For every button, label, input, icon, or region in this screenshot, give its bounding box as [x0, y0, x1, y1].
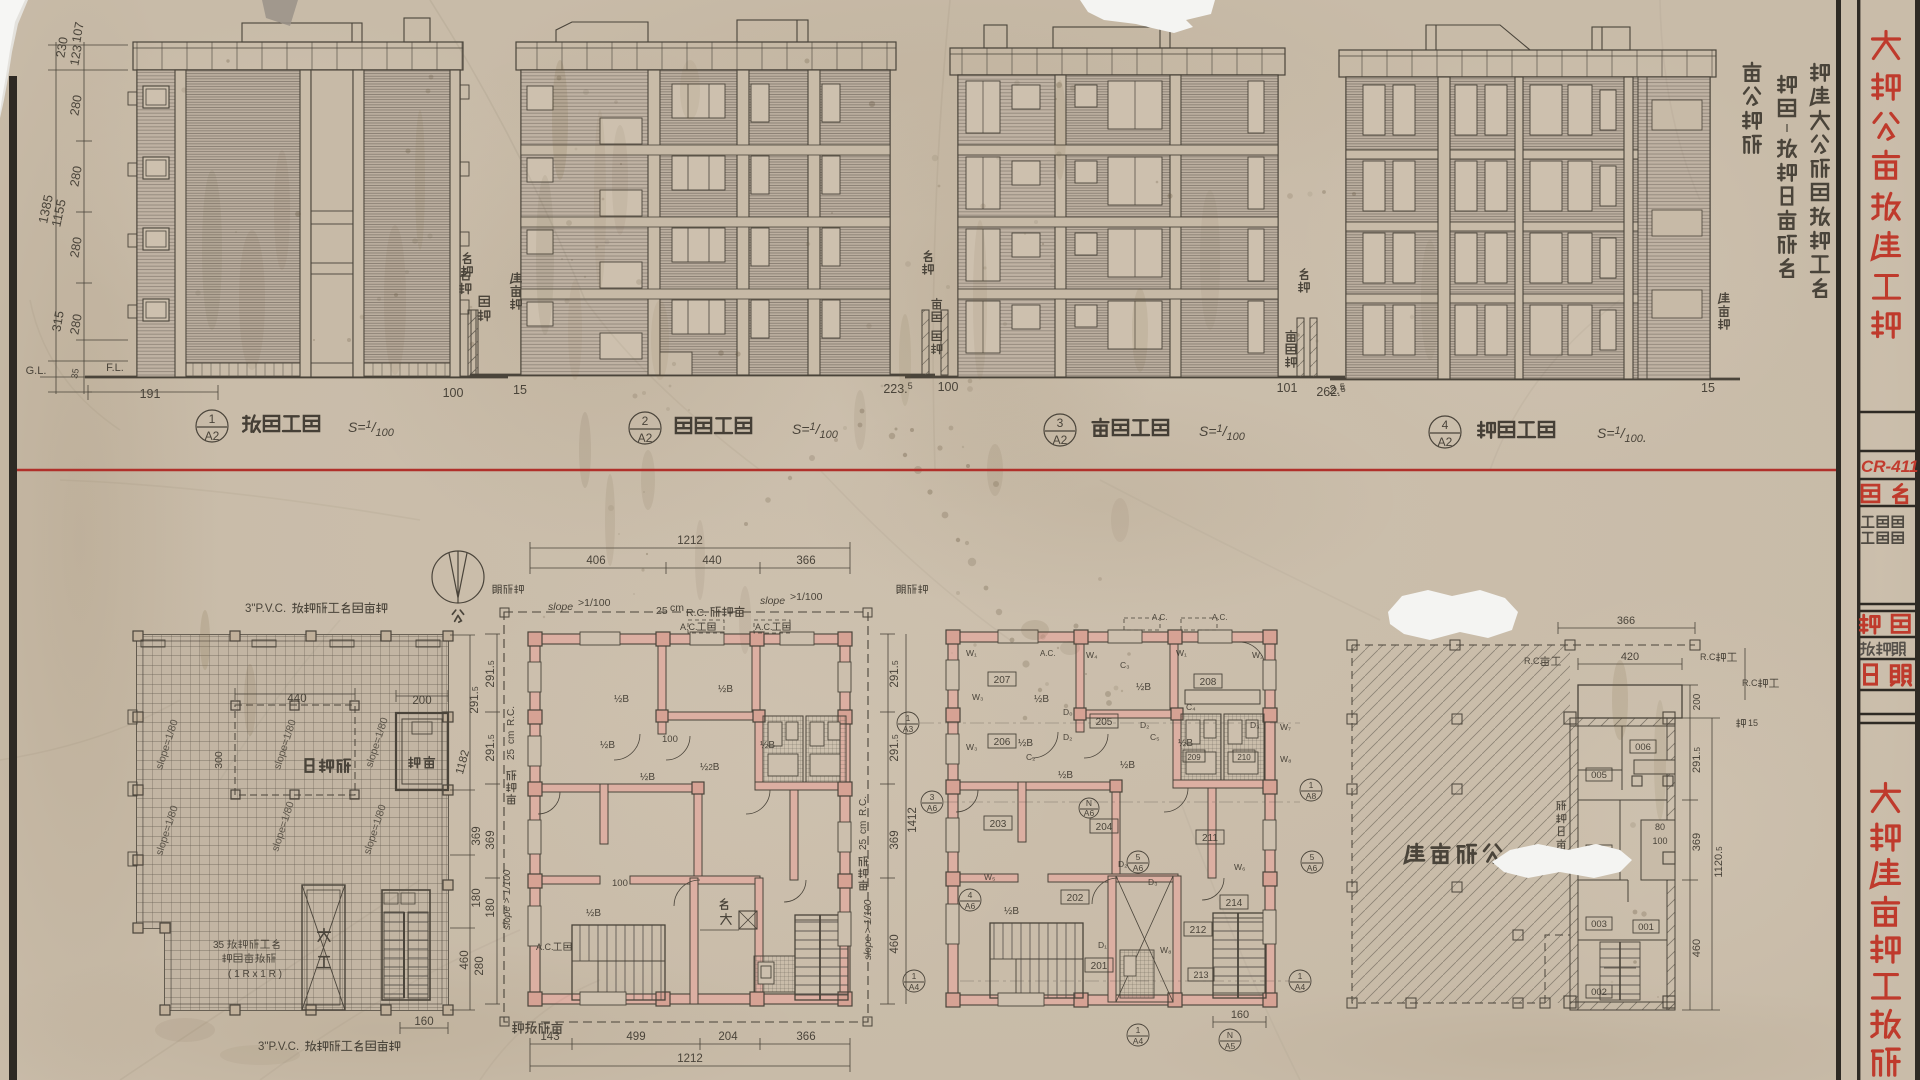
svg-text:366: 366: [796, 1031, 815, 1043]
svg-text:A.C.: A.C.: [1040, 649, 1056, 658]
svg-text:D₂: D₂: [1118, 859, 1127, 869]
svg-text:½B: ½B: [1034, 694, 1049, 705]
svg-text:W₈: W₈: [1280, 754, 1292, 764]
svg-text:1: 1: [1298, 971, 1303, 981]
svg-text:A.C.: A.C.: [1212, 613, 1228, 622]
svg-text:206: 206: [994, 737, 1011, 748]
svg-text:N: N: [1227, 1030, 1233, 1040]
svg-text:100: 100: [662, 734, 678, 745]
svg-text:440: 440: [702, 555, 721, 567]
svg-text:210: 210: [1237, 753, 1251, 762]
svg-text:½B: ½B: [1136, 682, 1151, 693]
svg-text:R.C.: R.C.: [1700, 652, 1718, 662]
svg-text:291.5: 291.5: [469, 686, 481, 713]
svg-text:½2B: ½2B: [700, 762, 720, 773]
svg-text:200: 200: [412, 695, 431, 707]
svg-text:406: 406: [586, 555, 605, 567]
svg-text:½B: ½B: [600, 740, 615, 751]
svg-text:15: 15: [1748, 718, 1758, 728]
svg-text:A6: A6: [1133, 863, 1144, 873]
svg-text:A4: A4: [1295, 982, 1306, 992]
svg-text:143: 143: [540, 1031, 559, 1043]
svg-text:A8: A8: [1306, 791, 1317, 801]
svg-text:202: 202: [1067, 893, 1084, 904]
svg-text:200: 200: [1692, 693, 1703, 710]
svg-text:A3: A3: [903, 724, 914, 734]
svg-text:1120.5: 1120.5: [1713, 846, 1725, 878]
svg-text:366: 366: [796, 555, 815, 567]
svg-text:211: 211: [1202, 833, 1218, 844]
svg-text:W₃: W₃: [966, 742, 977, 752]
svg-text:100: 100: [612, 878, 628, 889]
svg-text:5: 5: [1310, 852, 1315, 862]
svg-text:R.C.: R.C.: [1742, 678, 1760, 688]
svg-text:D₂: D₂: [1063, 732, 1072, 742]
svg-text:80: 80: [1655, 822, 1665, 832]
svg-text:W₁: W₁: [1176, 648, 1187, 658]
svg-text:213: 213: [1193, 970, 1208, 980]
svg-text:201: 201: [1091, 961, 1108, 972]
svg-text:1: 1: [209, 412, 216, 426]
svg-text:½B: ½B: [1058, 770, 1073, 781]
svg-text:1: 1: [906, 713, 911, 723]
svg-text:1: 1: [1136, 1025, 1141, 1035]
svg-text:½B: ½B: [1018, 738, 1033, 749]
svg-text:A.C.: A.C.: [680, 622, 698, 632]
svg-text:369: 369: [485, 830, 497, 849]
svg-text:291.5: 291.5: [889, 734, 901, 761]
svg-text:006: 006: [1635, 742, 1651, 753]
svg-text:2: 2: [642, 414, 649, 428]
svg-text:½B: ½B: [586, 908, 601, 919]
svg-text:½B: ½B: [718, 684, 733, 695]
svg-text:slope > 1/100: slope > 1/100: [502, 869, 513, 930]
svg-text:291.5: 291.5: [889, 660, 901, 687]
svg-text:4: 4: [968, 890, 973, 900]
svg-text:003: 003: [1591, 919, 1607, 930]
svg-text:A.C.: A.C.: [1152, 613, 1168, 622]
svg-text:A6: A6: [1084, 808, 1095, 818]
svg-text:½B: ½B: [614, 694, 629, 705]
svg-text:25: 25: [506, 748, 517, 760]
svg-text:1212: 1212: [677, 1053, 703, 1065]
svg-text:440: 440: [287, 693, 306, 705]
svg-text:A4: A4: [909, 982, 920, 992]
svg-text:slope: slope: [760, 595, 785, 607]
svg-text:300: 300: [213, 751, 225, 769]
svg-text:D₂: D₂: [1140, 720, 1149, 730]
svg-text:cm: cm: [506, 731, 517, 744]
svg-text:35: 35: [213, 940, 225, 951]
svg-text:291.5: 291.5: [1691, 747, 1703, 773]
svg-text:100: 100: [443, 386, 464, 400]
svg-text:W₄: W₄: [1086, 650, 1098, 660]
svg-text:291.5: 291.5: [485, 660, 497, 687]
svg-text:A2: A2: [1053, 433, 1068, 447]
svg-text:½B: ½B: [760, 740, 775, 751]
svg-text:R.C.: R.C.: [858, 796, 869, 816]
svg-text:A6: A6: [927, 803, 938, 813]
svg-text:460: 460: [889, 934, 901, 953]
svg-text:4: 4: [1442, 418, 1449, 432]
svg-text:W₈: W₈: [1160, 945, 1172, 955]
svg-text:3: 3: [930, 792, 935, 802]
svg-text:A4: A4: [1133, 1036, 1144, 1046]
svg-text:cm: cm: [670, 602, 684, 614]
svg-text:160: 160: [1231, 1009, 1249, 1021]
svg-text:A.C.: A.C.: [755, 622, 773, 632]
svg-text:CR-411: CR-411: [1861, 457, 1918, 476]
svg-text:F.L.: F.L.: [106, 362, 124, 374]
svg-text:A6: A6: [965, 901, 976, 911]
svg-text:101: 101: [1277, 381, 1298, 395]
svg-text:280: 280: [474, 956, 486, 975]
svg-text:001: 001: [1638, 922, 1654, 933]
svg-text:25: 25: [858, 838, 869, 850]
svg-text:203: 203: [990, 819, 1007, 830]
svg-text:100: 100: [1652, 836, 1667, 846]
svg-text:212: 212: [1190, 925, 1207, 936]
svg-text:W₅: W₅: [984, 872, 995, 882]
svg-text:A.C.: A.C.: [536, 942, 554, 952]
svg-text:A2: A2: [1438, 435, 1453, 449]
svg-text:207: 207: [994, 675, 1011, 686]
svg-text:5: 5: [1136, 852, 1141, 862]
svg-text:D₃: D₃: [1250, 720, 1260, 730]
svg-text:D₀: D₀: [1063, 707, 1073, 717]
svg-text:N: N: [1086, 798, 1092, 808]
svg-text:208: 208: [1200, 677, 1217, 688]
svg-text:3: 3: [1057, 416, 1064, 430]
svg-text:160: 160: [414, 1016, 433, 1028]
svg-text:½B: ½B: [1178, 738, 1193, 749]
svg-text:W₁: W₁: [966, 648, 977, 658]
svg-text:cm: cm: [858, 821, 869, 834]
svg-text:100: 100: [938, 380, 959, 394]
svg-text:15: 15: [1701, 381, 1715, 395]
svg-text:½B: ½B: [1004, 906, 1019, 917]
svg-text:R.C.: R.C.: [686, 607, 707, 619]
svg-text:1: 1: [1309, 780, 1314, 790]
svg-text:420: 420: [1621, 651, 1639, 663]
svg-text:G.L.: G.L.: [26, 365, 47, 377]
svg-text:15: 15: [513, 383, 527, 397]
svg-text:½B: ½B: [1120, 760, 1135, 771]
svg-text:204: 204: [1096, 822, 1113, 833]
svg-text:25: 25: [656, 605, 668, 617]
svg-text:D₃: D₃: [1148, 877, 1158, 887]
svg-text:A2: A2: [205, 429, 220, 443]
svg-text:204: 204: [718, 1031, 738, 1043]
svg-text:460: 460: [1691, 939, 1703, 957]
svg-text:R.C.: R.C.: [1524, 656, 1542, 666]
svg-text:>1/100: >1/100: [578, 597, 611, 609]
svg-text:C₅: C₅: [1150, 732, 1160, 742]
svg-text:W₂: W₂: [1252, 650, 1263, 660]
svg-text:C₃: C₃: [1120, 660, 1130, 670]
svg-text:A5: A5: [1225, 1041, 1236, 1051]
svg-text:W₃: W₃: [972, 692, 983, 702]
svg-text:209: 209: [1187, 753, 1201, 762]
svg-text:180: 180: [485, 898, 497, 917]
svg-text:369: 369: [471, 826, 483, 845]
svg-text:D₁: D₁: [1098, 940, 1107, 950]
svg-text:W₆: W₆: [1234, 862, 1245, 872]
svg-text:A2: A2: [638, 431, 653, 445]
svg-text:369: 369: [889, 830, 901, 849]
svg-text:½B: ½B: [640, 772, 655, 783]
svg-text:291.5: 291.5: [485, 734, 497, 761]
svg-text:C₄: C₄: [1186, 702, 1196, 712]
svg-text:>1/100: >1/100: [790, 591, 823, 603]
svg-text:3"P.V.C.: 3"P.V.C.: [245, 603, 286, 615]
svg-text:35: 35: [69, 368, 81, 380]
svg-text:R.C.: R.C.: [506, 706, 517, 726]
svg-text:C₂: C₂: [1026, 752, 1035, 762]
svg-text:slope > 1/100: slope > 1/100: [863, 899, 874, 960]
svg-text:1: 1: [912, 971, 917, 981]
svg-text:366: 366: [1617, 615, 1635, 627]
svg-text:191: 191: [140, 387, 161, 401]
svg-text:499: 499: [626, 1031, 645, 1043]
svg-text:slope: slope: [548, 601, 573, 613]
svg-text:A6: A6: [1307, 863, 1318, 873]
svg-text:214: 214: [1226, 898, 1243, 909]
svg-text:205: 205: [1096, 717, 1113, 728]
svg-text:005: 005: [1591, 770, 1607, 781]
svg-text:1412: 1412: [907, 807, 919, 833]
svg-text:369: 369: [1691, 833, 1703, 851]
svg-text:W₇: W₇: [1280, 722, 1291, 732]
svg-text:180: 180: [471, 888, 483, 907]
